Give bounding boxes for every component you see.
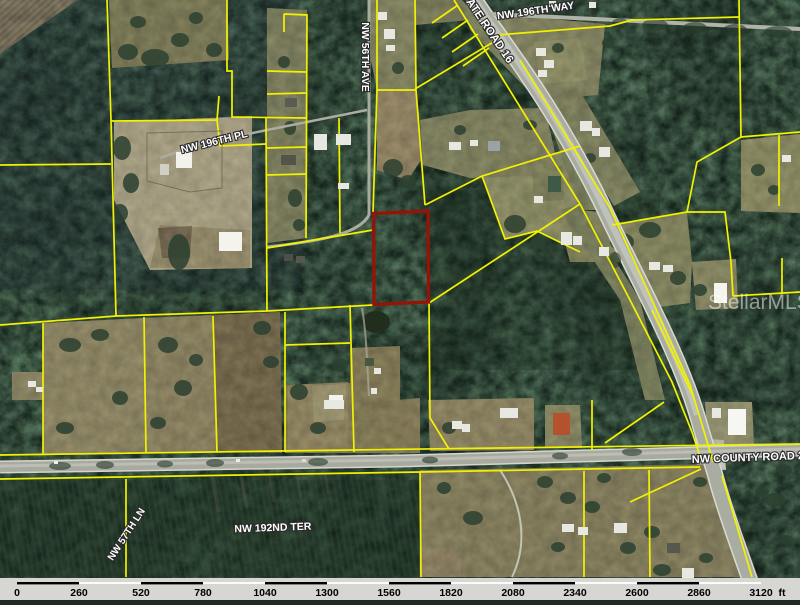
svg-text:3120: 3120 [749, 587, 773, 599]
svg-text:1300: 1300 [315, 587, 339, 599]
svg-text:1820: 1820 [439, 587, 463, 599]
svg-text:2860: 2860 [687, 587, 711, 599]
svg-text:NW 56TH AVE: NW 56TH AVE [359, 22, 371, 91]
svg-text:StellarMLS: StellarMLS [708, 291, 800, 314]
svg-text:260: 260 [70, 587, 88, 599]
svg-text:0: 0 [14, 587, 20, 599]
svg-text:1040: 1040 [253, 587, 277, 599]
svg-text:ft: ft [779, 587, 786, 599]
svg-text:2340: 2340 [563, 587, 587, 599]
svg-text:2080: 2080 [501, 587, 525, 599]
svg-text:1560: 1560 [377, 587, 401, 599]
svg-text:520: 520 [132, 587, 150, 599]
svg-text:2600: 2600 [625, 587, 649, 599]
svg-text:780: 780 [194, 587, 212, 599]
